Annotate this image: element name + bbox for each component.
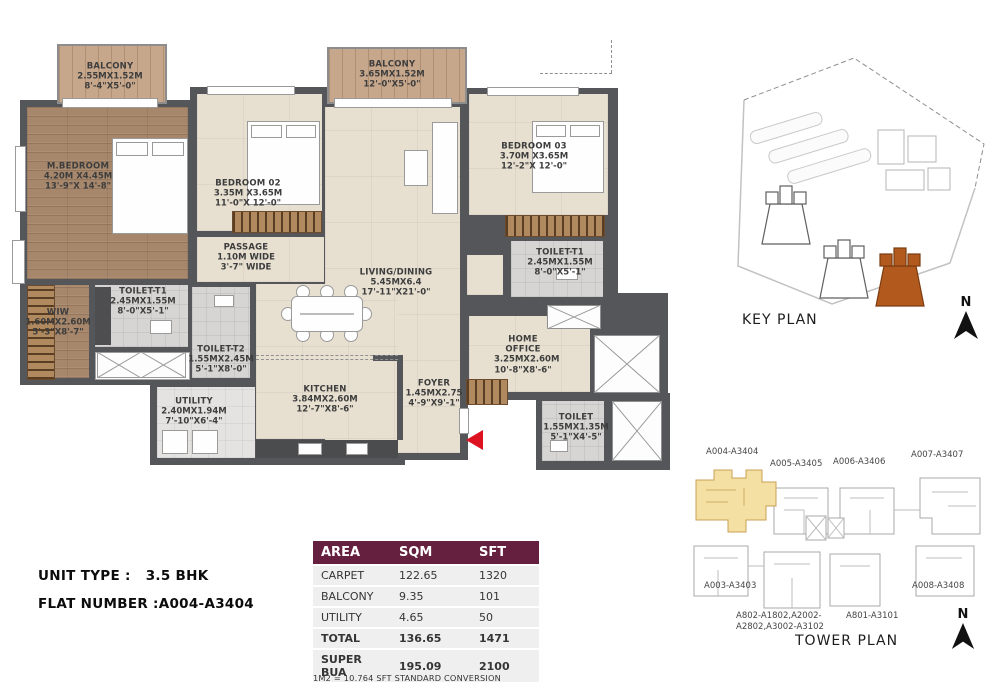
room-label-bedroom03: BEDROOM 033.70M X3.65M12'-2"X 12'-0"	[500, 142, 568, 173]
unit-type-label: UNIT TYPE :	[38, 568, 131, 584]
unit-label-a003: A003-A3403	[704, 581, 756, 591]
unit-type-line: UNIT TYPE : 3.5 BHK	[38, 568, 208, 584]
window	[207, 86, 295, 95]
shaft-icon	[594, 335, 660, 393]
kitchen-counter	[256, 440, 398, 458]
wardrobe-bedroom03	[505, 215, 605, 237]
window	[12, 240, 25, 284]
kitchen-divider-dash	[256, 355, 398, 356]
table-row-balcony: BALCONY 9.35 101	[313, 587, 539, 606]
tower-plan-highlighted-unit	[696, 470, 776, 532]
key-plan-highlighted-tower	[876, 248, 924, 306]
north-arrow-icon: N	[950, 608, 976, 651]
unit-label-a802-line2: A2802,A3002-A3102	[736, 622, 824, 632]
room-label-toilet-t1a: TOILET-T12.45MX1.55M8'-0"X5'-1"	[110, 287, 175, 318]
window	[487, 87, 579, 96]
room-label-master-bedroom: M.BEDROOM4.20M X4.45M13'-9"X 14'-8"	[44, 162, 112, 193]
room-label-passage: PASSAGE1.10M WIDE3'-7" WIDE	[217, 243, 275, 274]
flat-number-line: FLAT NUMBER :A004-A3404	[38, 596, 254, 612]
washer	[162, 430, 188, 454]
foyer-wall	[397, 355, 403, 440]
conversion-note: 1M2 = 10.764 SFT STANDARD CONVERSION	[313, 673, 501, 683]
key-plan-caption: KEY PLAN	[742, 312, 818, 328]
key-plan-map	[728, 38, 998, 338]
flat-number-value: A004-A3404	[159, 596, 254, 612]
washer	[192, 430, 218, 454]
unit-label-a006: A006-A3406	[833, 457, 885, 467]
shaft-icon	[612, 401, 662, 461]
tower-plan-map	[688, 458, 1000, 618]
room-label-living-dining: LIVING/DINING5.45MX6.417'-11"X21'-0"	[360, 268, 433, 299]
washbasin	[214, 295, 234, 307]
window	[62, 98, 158, 108]
wardrobe-x-icon	[97, 352, 186, 378]
room-label-foyer: FOYER1.45MX2.754'-9"X9'-1"	[406, 379, 463, 410]
room-label-toilet-t1b: TOILET-T12.45MX1.55M8'-0"X5'-1"	[527, 248, 592, 279]
room-label-balcony-2: BALCONY3.65MX1.52M12'-0"X5'-0"	[359, 60, 424, 91]
table-row-carpet: CARPET 122.65 1320	[313, 566, 539, 585]
sofa	[432, 122, 458, 214]
room-label-utility: UTILITY2.40MX1.94M7'-10"X6'-4"	[161, 397, 226, 428]
pillow	[570, 125, 600, 137]
neighbor-dash	[611, 40, 612, 73]
table-row-utility: UTILITY 4.65 50	[313, 608, 539, 627]
foyer-cabinet	[466, 379, 508, 405]
room-label-wiw: WIW1.60MX2.60M5'-3"X8'-7"	[25, 308, 90, 339]
col-header-sqm: SQM	[391, 541, 471, 564]
north-arrow-icon: N	[952, 296, 980, 341]
room-label-bedroom02: BEDROOM 023.35M X3.65M11'-0"X 12'-0"	[214, 179, 282, 210]
unit-label-a005: A005-A3405	[770, 459, 822, 469]
room-label-home-office: HOME OFFICE3.25MX2.60M10'-8"X8'-6"	[494, 335, 552, 376]
pillow	[152, 142, 184, 156]
toilet-t1a-ledge	[95, 287, 111, 345]
room-label-toilet: TOILET1.55MX1.35M5'-1"X4'-5"	[543, 413, 608, 444]
tower-plan-caption: TOWER PLAN	[795, 633, 898, 649]
neighbor-dash	[540, 73, 612, 74]
flat-number-label: FLAT NUMBER :	[38, 596, 159, 612]
unit-label-a801: A801-A3101	[846, 611, 898, 621]
kitchen-hob	[346, 443, 368, 455]
area-table: AREA SQM SFT CARPET 122.65 1320 BALCONY …	[313, 539, 539, 684]
bedroom03-door-niche	[467, 255, 503, 295]
window	[334, 98, 452, 108]
shaft-icon	[547, 305, 601, 329]
side-table	[404, 150, 428, 186]
dining-table-centerline	[300, 313, 354, 315]
washbasin	[150, 320, 172, 334]
col-header-sft: SFT	[471, 541, 539, 564]
room-label-kitchen: KITCHEN3.84MX2.60M12'-7"X8'-6"	[292, 385, 357, 416]
pillow	[286, 125, 316, 138]
window	[15, 146, 26, 212]
kitchen-divider-dash	[256, 359, 398, 360]
room-label-balcony-1: BALCONY2.55MX1.52M8'-4"X5'-0"	[77, 62, 142, 93]
wardrobe-bedroom02	[232, 211, 322, 233]
pillow	[251, 125, 282, 138]
room-label-toilet-t2: TOILET-T21.55MX2.45M5'-1"X8'-0"	[188, 345, 253, 376]
floorplan-page: BALCONY2.55MX1.52M8'-4"X5'-0" M.BEDROOM4…	[0, 0, 1000, 687]
unit-type-value: 3.5 BHK	[146, 568, 209, 584]
unit-label-a802-line1: A802-A1802,A2002-	[736, 611, 822, 621]
kitchen-sink	[298, 443, 322, 455]
unit-label-a004: A004-A3404	[706, 447, 758, 457]
unit-label-a008: A008-A3408	[912, 581, 964, 591]
entry-arrow-icon	[466, 430, 483, 450]
pillow	[116, 142, 148, 156]
pillow	[536, 125, 566, 137]
area-table-header-row: AREA SQM SFT	[313, 541, 539, 564]
unit-label-a007: A007-A3407	[911, 450, 963, 460]
col-header-area: AREA	[313, 541, 391, 564]
table-row-total: TOTAL 136.65 1471	[313, 629, 539, 648]
